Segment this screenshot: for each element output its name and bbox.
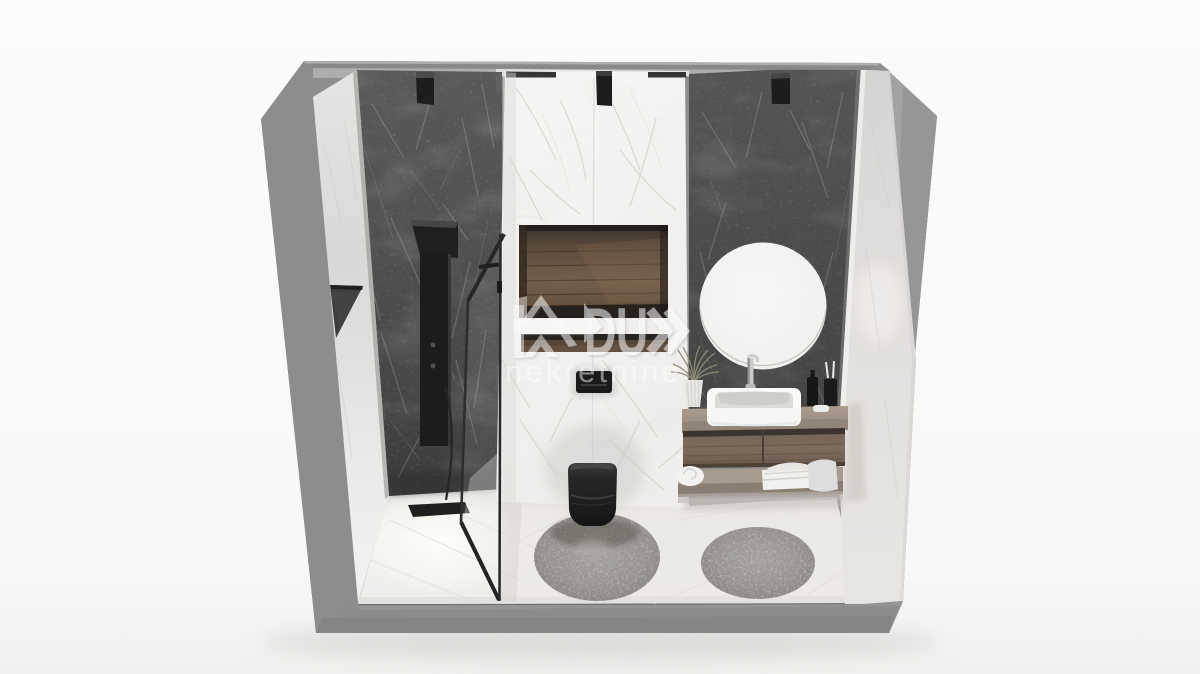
svg-text:nekretnine: nekretnine: [505, 354, 682, 389]
